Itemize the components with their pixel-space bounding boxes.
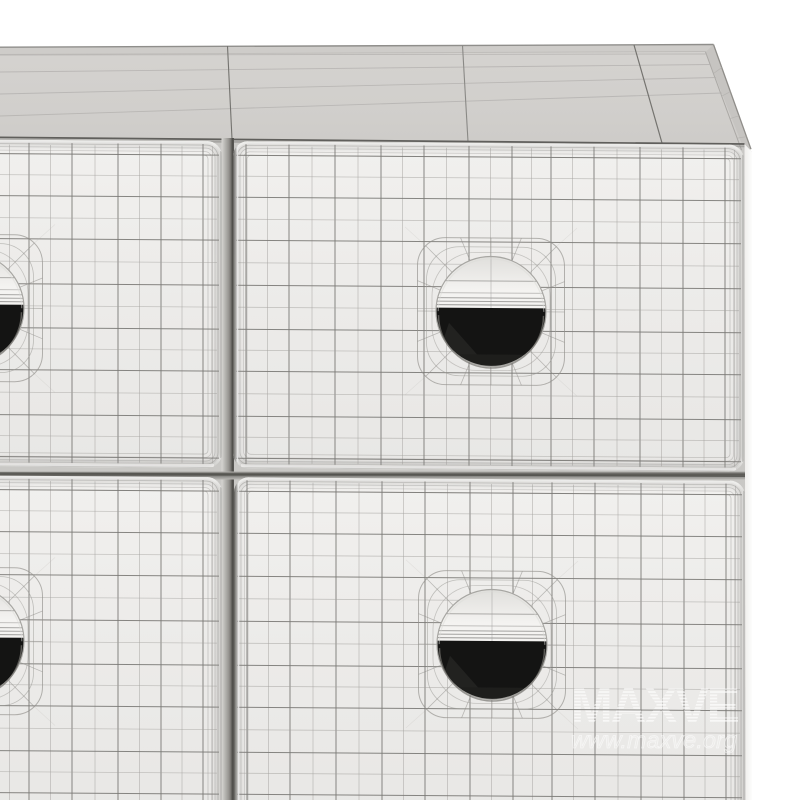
svg-text:MAXVE: MAXVE xyxy=(571,678,739,734)
svg-text:www.maxve.org: www.maxve.org xyxy=(571,727,737,753)
